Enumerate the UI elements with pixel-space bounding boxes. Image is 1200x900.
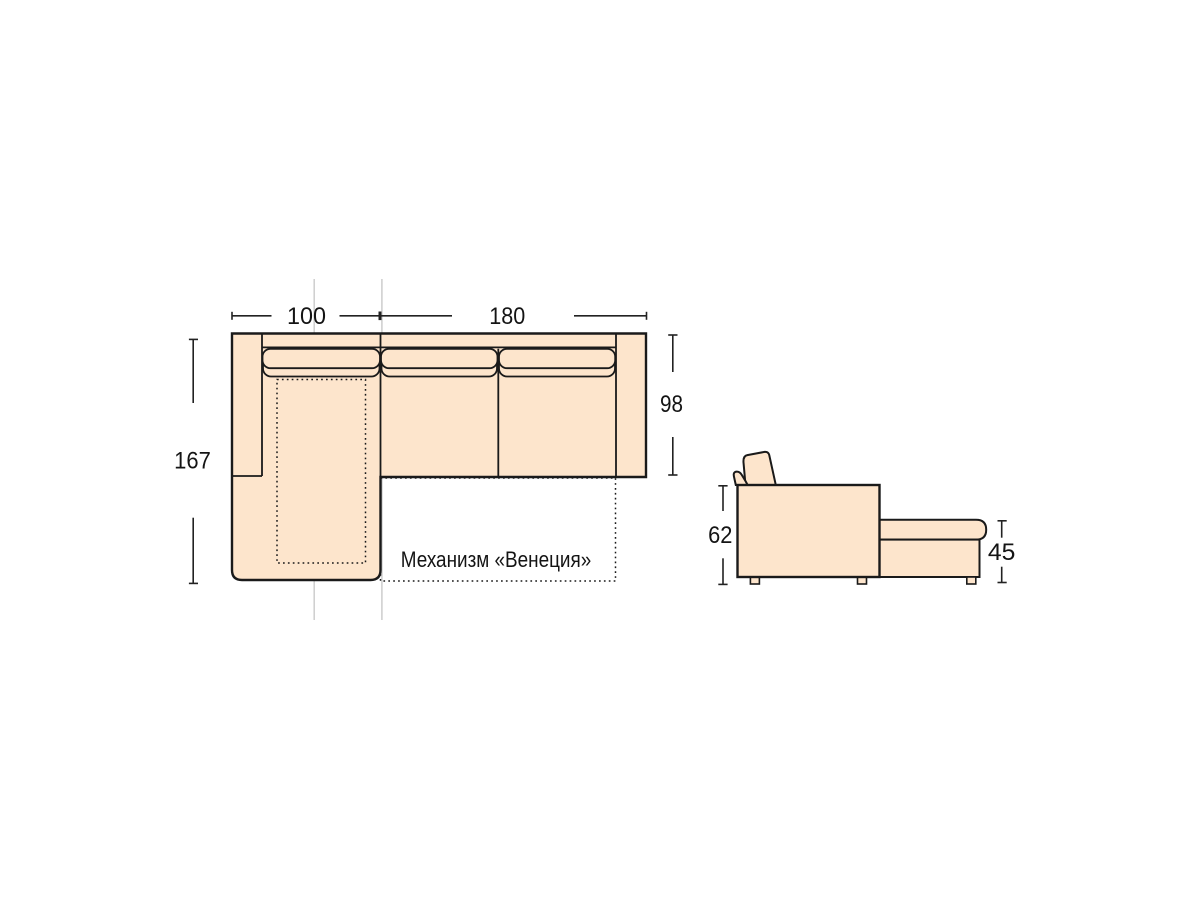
svg-text:100: 100 — [287, 303, 326, 330]
svg-text:62: 62 — [708, 522, 732, 549]
svg-text:45: 45 — [988, 539, 1016, 566]
svg-text:180: 180 — [489, 303, 525, 330]
svg-text:167: 167 — [174, 448, 211, 475]
svg-text:Механизм «Венеция»: Механизм «Венеция» — [401, 547, 592, 572]
svg-text:98: 98 — [660, 391, 683, 418]
